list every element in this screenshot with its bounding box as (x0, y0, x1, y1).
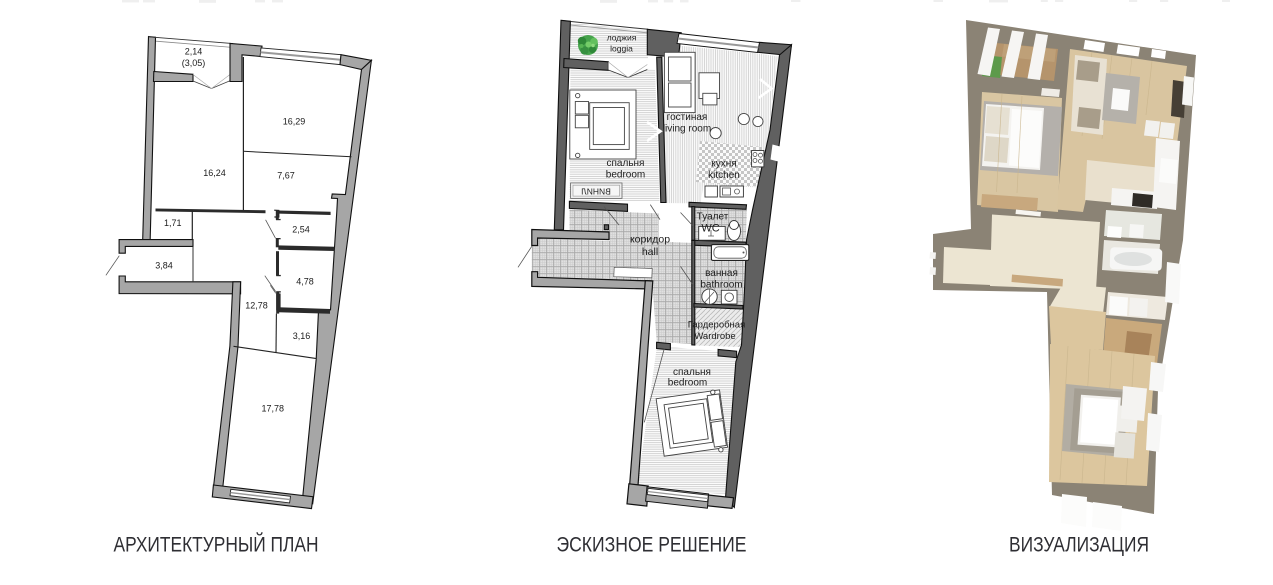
svg-text:ВИНИЛ: ВИНИЛ (581, 187, 611, 197)
svg-text:ванная: ванная (705, 268, 738, 279)
svg-text:(3,05): (3,05) (182, 58, 206, 68)
svg-text:спальня: спальня (607, 158, 645, 169)
svg-text:bedroom: bedroom (606, 170, 645, 181)
svg-text:12,78: 12,78 (245, 301, 268, 311)
svg-text:loggia: loggia (610, 44, 633, 54)
svg-text:hall: hall (642, 246, 658, 258)
svg-text:кухня: кухня (711, 159, 736, 170)
svg-text:3,16: 3,16 (293, 331, 311, 341)
svg-text:living room: living room (663, 124, 711, 135)
svg-text:7,67: 7,67 (277, 171, 295, 181)
svg-text:лоджия: лоджия (607, 33, 637, 43)
svg-text:3,84: 3,84 (155, 261, 173, 271)
svg-text:4,78: 4,78 (296, 277, 314, 287)
svg-text:kitchen: kitchen (708, 170, 740, 181)
svg-text:bathroom: bathroom (700, 280, 742, 291)
svg-text:Гардеробная: Гардеробная (688, 320, 745, 331)
svg-text:ВИЗУАЛИЗАЦИЯ: ВИЗУАЛИЗАЦИЯ (1009, 534, 1149, 557)
svg-text:17,78: 17,78 (262, 404, 285, 414)
svg-text:bedroom: bedroom (668, 378, 707, 389)
svg-text:Wardrobe: Wardrobe (694, 331, 735, 342)
svg-text:1,71: 1,71 (164, 218, 182, 228)
svg-text:2,14: 2,14 (185, 47, 203, 57)
svg-text:2,54: 2,54 (292, 225, 310, 235)
svg-text:WC: WC (701, 223, 719, 235)
svg-text:АРХИТЕКТУРНЫЙ ПЛАН: АРХИТЕКТУРНЫЙ ПЛАН (114, 533, 319, 557)
svg-text:коридор: коридор (630, 234, 670, 246)
svg-text:16,24: 16,24 (203, 168, 226, 178)
svg-text:ЭСКИЗНОЕ РЕШЕНИЕ: ЭСКИЗНОЕ РЕШЕНИЕ (557, 534, 747, 557)
svg-text:гостиная: гостиная (667, 112, 708, 123)
svg-text:Туалет: Туалет (697, 212, 729, 223)
svg-text:16,29: 16,29 (283, 117, 306, 127)
svg-text:спальня: спальня (673, 367, 711, 378)
